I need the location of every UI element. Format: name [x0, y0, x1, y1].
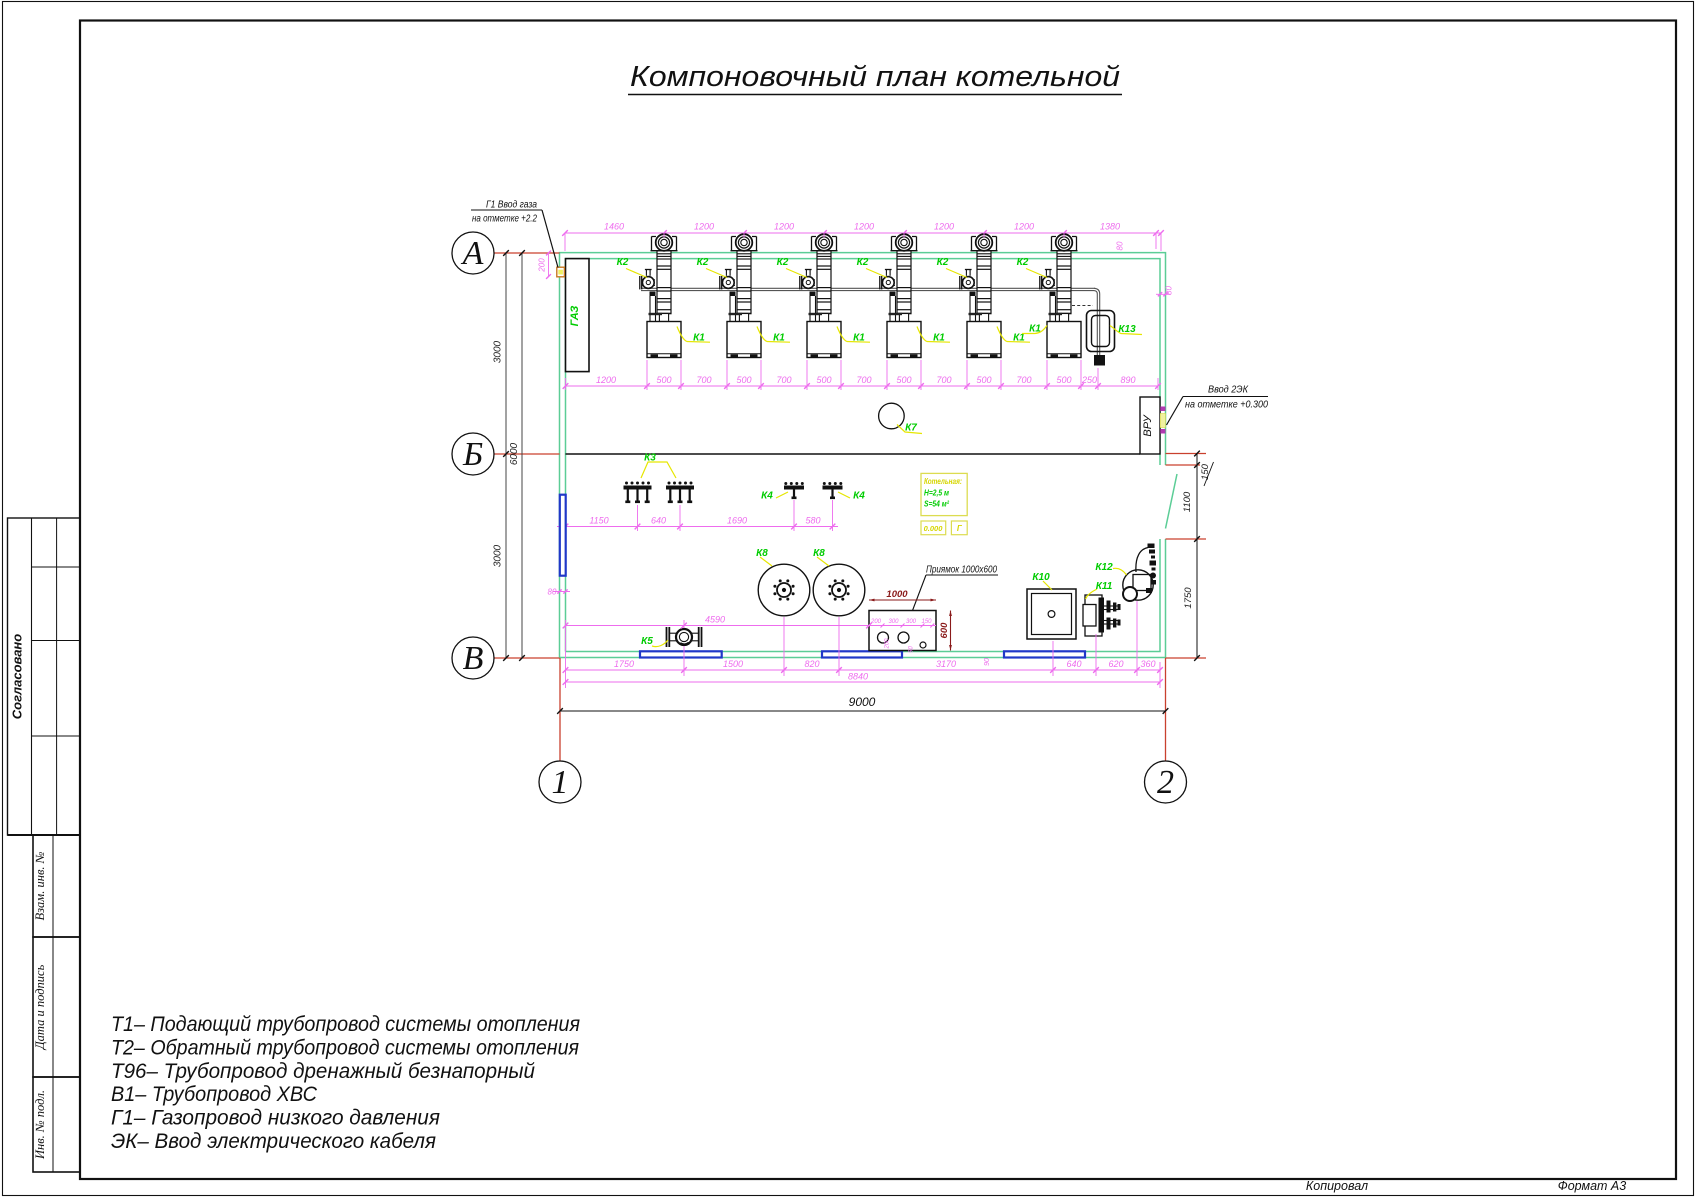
svg-text:Т2– Обратный трубопровод систе: Т2– Обратный трубопровод системы отоплен… — [111, 1036, 579, 1059]
svg-text:Т1– Подающий трубопровод систе: Т1– Подающий трубопровод системы отоплен… — [111, 1013, 580, 1036]
svg-text:К12: К12 — [1095, 562, 1113, 573]
svg-text:820: 820 — [804, 659, 819, 669]
svg-text:1100: 1100 — [1182, 491, 1193, 512]
svg-text:500: 500 — [656, 375, 671, 385]
svg-text:Компоновочный план котельной: Компоновочный план котельной — [630, 61, 1120, 93]
svg-text:1380: 1380 — [1100, 222, 1120, 232]
svg-text:1200: 1200 — [596, 375, 616, 385]
svg-text:700: 700 — [696, 375, 711, 385]
svg-text:360: 360 — [1140, 659, 1155, 669]
svg-text:К1: К1 — [693, 333, 705, 344]
svg-text:500: 500 — [736, 375, 751, 385]
svg-text:600: 600 — [939, 622, 950, 639]
svg-text:3170: 3170 — [936, 659, 956, 669]
svg-text:1200: 1200 — [774, 222, 794, 232]
svg-text:К8: К8 — [756, 548, 768, 559]
svg-text:К4: К4 — [853, 491, 865, 502]
svg-text:1200: 1200 — [694, 222, 714, 232]
svg-text:К11: К11 — [1096, 581, 1113, 592]
svg-text:Ввод 2ЭК: Ввод 2ЭК — [1208, 385, 1249, 396]
svg-text:640: 640 — [1066, 659, 1081, 669]
svg-text:2: 2 — [1157, 764, 1174, 801]
svg-text:580: 580 — [805, 516, 820, 526]
svg-text:8840: 8840 — [848, 672, 868, 682]
svg-text:1200: 1200 — [1014, 222, 1034, 232]
svg-text:Согласовано: Согласовано — [10, 634, 25, 720]
svg-text:6000: 6000 — [509, 442, 520, 465]
svg-text:200: 200 — [538, 258, 547, 273]
svg-text:1000: 1000 — [886, 589, 908, 600]
svg-text:80: 80 — [1165, 286, 1174, 295]
svg-text:700: 700 — [856, 375, 871, 385]
svg-text:Т96– Трубопровод дренажный без: Т96– Трубопровод дренажный безнапорный — [111, 1060, 535, 1083]
svg-text:500: 500 — [976, 375, 991, 385]
svg-text:Дата и подпись: Дата и подпись — [33, 964, 47, 1050]
svg-text:80: 80 — [548, 588, 557, 597]
svg-text:640: 640 — [651, 516, 666, 526]
svg-text:К13: К13 — [1118, 324, 1136, 335]
svg-text:1460: 1460 — [604, 222, 624, 232]
svg-text:К5: К5 — [641, 636, 653, 647]
svg-text:ВРУ: ВРУ — [1142, 414, 1154, 436]
svg-text:Инв. № подл.: Инв. № подл. — [33, 1090, 47, 1160]
svg-text:S=54 м²: S=54 м² — [924, 500, 949, 509]
svg-text:0.000: 0.000 — [924, 524, 944, 533]
svg-text:ЭК– Ввод электрического кабеля: ЭК– Ввод электрического кабеля — [111, 1130, 436, 1153]
svg-text:Н=2,5 м: Н=2,5 м — [924, 489, 949, 498]
svg-text:на отметке +2.2: на отметке +2.2 — [472, 214, 537, 225]
svg-text:Приямок 1000х600: Приямок 1000х600 — [926, 565, 997, 576]
svg-text:890: 890 — [1120, 375, 1135, 385]
svg-text:Г1– Газопровод низкого давлени: Г1– Газопровод низкого давления — [111, 1107, 440, 1130]
svg-text:300: 300 — [888, 619, 899, 625]
svg-text:1750: 1750 — [614, 659, 634, 669]
svg-text:300: 300 — [906, 619, 917, 625]
svg-text:500: 500 — [896, 375, 911, 385]
svg-text:200: 200 — [885, 638, 891, 650]
svg-text:700: 700 — [1016, 375, 1031, 385]
svg-text:А: А — [461, 235, 484, 272]
svg-text:1500: 1500 — [723, 659, 743, 669]
svg-text:К1: К1 — [933, 333, 945, 344]
svg-text:1: 1 — [552, 764, 569, 801]
svg-text:90: 90 — [909, 646, 915, 653]
svg-text:К1: К1 — [853, 333, 865, 344]
svg-text:К1: К1 — [773, 333, 785, 344]
svg-text:К1: К1 — [1029, 324, 1041, 335]
svg-text:500: 500 — [1056, 375, 1071, 385]
svg-text:200: 200 — [870, 619, 882, 625]
svg-text:В: В — [463, 640, 484, 677]
svg-text:К3: К3 — [644, 453, 656, 464]
svg-text:Формат А3: Формат А3 — [1558, 1179, 1626, 1193]
svg-text:К10: К10 — [1032, 572, 1050, 583]
svg-text:700: 700 — [776, 375, 791, 385]
svg-text:1750: 1750 — [1183, 587, 1194, 609]
svg-text:К7: К7 — [905, 423, 917, 434]
svg-text:250: 250 — [1081, 375, 1097, 385]
svg-text:1690: 1690 — [727, 516, 747, 526]
svg-text:Г1 Ввод газа: Г1 Ввод газа — [486, 200, 537, 211]
svg-text:1150: 1150 — [589, 516, 608, 526]
svg-text:К1: К1 — [1013, 333, 1025, 344]
svg-text:80: 80 — [1116, 241, 1125, 250]
svg-text:9000: 9000 — [849, 695, 876, 709]
svg-text:ГАЗ: ГАЗ — [569, 306, 581, 327]
svg-text:Копировал: Копировал — [1306, 1179, 1368, 1193]
svg-text:В1– Трубопровод ХВС: В1– Трубопровод ХВС — [111, 1083, 318, 1106]
svg-text:3000: 3000 — [493, 544, 504, 567]
svg-text:К4: К4 — [761, 491, 773, 502]
svg-text:500: 500 — [816, 375, 831, 385]
svg-text:Котельная:: Котельная: — [924, 477, 962, 486]
svg-text:150: 150 — [921, 619, 932, 625]
svg-text:4590: 4590 — [705, 615, 725, 625]
svg-text:К8: К8 — [813, 548, 825, 559]
svg-text:700: 700 — [936, 375, 951, 385]
svg-text:1200: 1200 — [854, 222, 874, 232]
svg-text:Б: Б — [462, 436, 483, 473]
svg-text:90: 90 — [984, 658, 991, 666]
svg-text:1200: 1200 — [934, 222, 954, 232]
svg-text:620: 620 — [1108, 659, 1123, 669]
svg-text:3000: 3000 — [493, 340, 504, 363]
svg-text:на отметке +0.300: на отметке +0.300 — [1185, 400, 1268, 411]
svg-text:Взам. инв. №: Взам. инв. № — [33, 851, 47, 920]
